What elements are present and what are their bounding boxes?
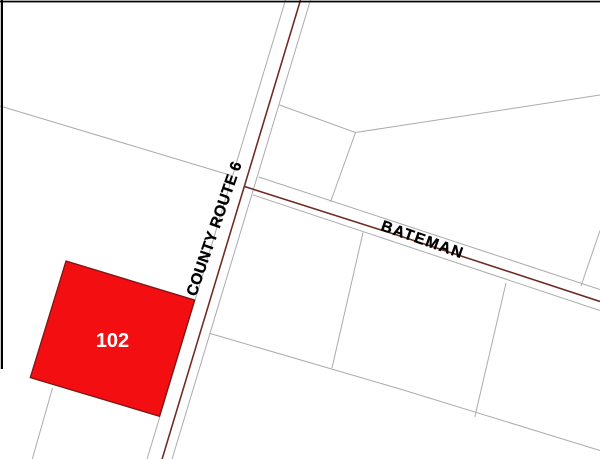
svg-text:102: 102	[96, 330, 129, 352]
